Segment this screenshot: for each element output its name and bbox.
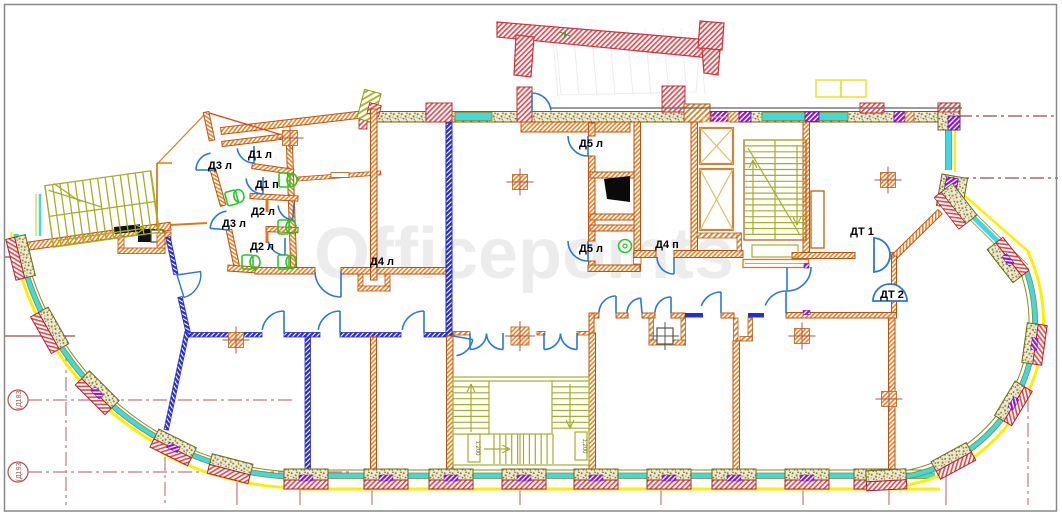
svg-text:Д4 п: Д4 п <box>655 239 679 251</box>
svg-text:Д3 л: Д3 л <box>222 218 246 230</box>
svg-text:Д2 л: Д2 л <box>250 241 274 253</box>
svg-text:Д3 л: Д3 л <box>208 160 232 172</box>
svg-text:ДТ 2: ДТ 2 <box>880 289 904 301</box>
svg-text:(Д183: (Д183 <box>16 391 23 410</box>
svg-text:1:200: 1:200 <box>581 438 587 454</box>
svg-text:1:200: 1:200 <box>474 440 480 456</box>
svg-text:Д1 п: Д1 п <box>255 179 279 191</box>
svg-text:Д2 л: Д2 л <box>251 206 275 218</box>
svg-text:Д1 л: Д1 л <box>248 149 272 161</box>
svg-text:Д5 л: Д5 л <box>579 138 603 150</box>
svg-text:ДТ 1: ДТ 1 <box>850 226 874 238</box>
svg-text:Д4 л: Д4 л <box>370 256 394 268</box>
svg-text:Д5 л: Д5 л <box>579 243 603 255</box>
svg-text:(Д193: (Д193 <box>16 463 23 482</box>
